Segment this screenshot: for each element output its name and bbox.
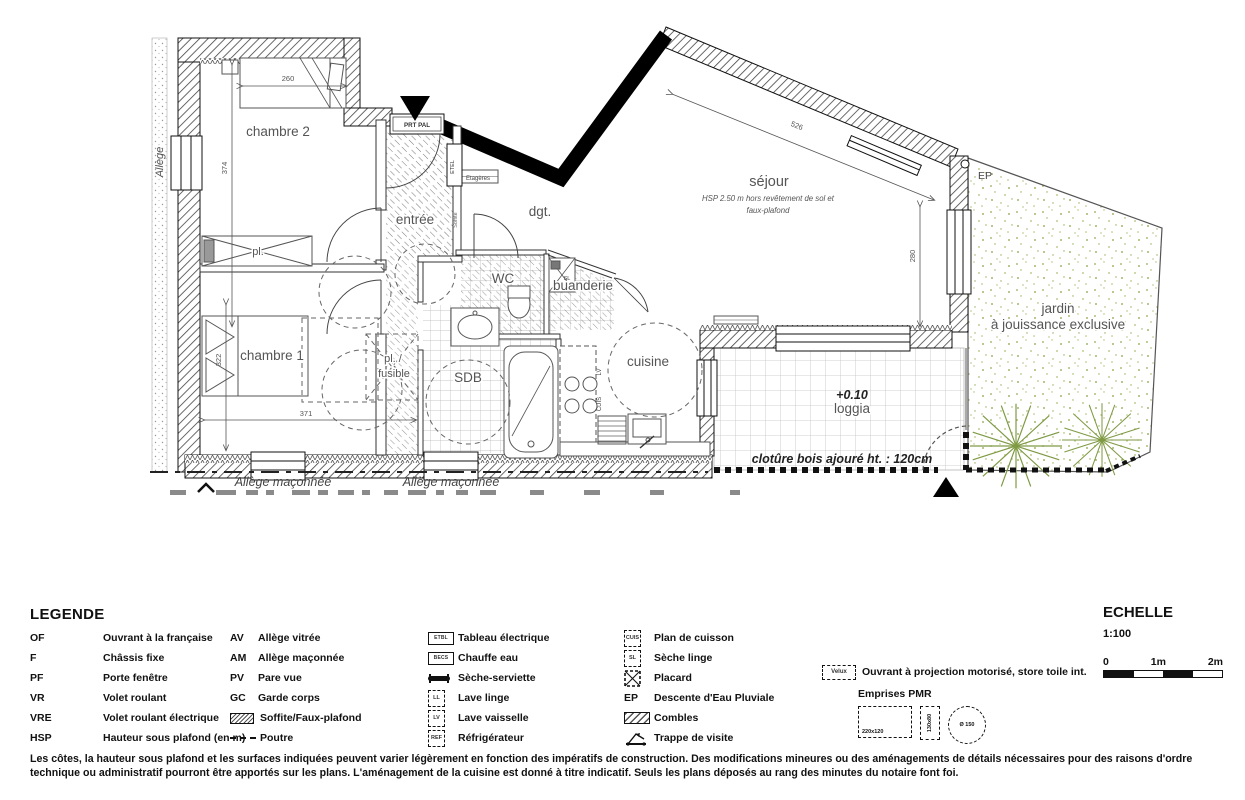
poutre-dash-icon bbox=[230, 737, 256, 739]
lave-vaisselle-icon: LV bbox=[428, 710, 445, 727]
svg-text:280: 280 bbox=[908, 250, 917, 263]
svg-text:371: 371 bbox=[300, 409, 313, 418]
soffite-pattern-icon bbox=[230, 713, 254, 724]
room-label-sdb: SDB bbox=[454, 370, 482, 385]
pmr-circle-150: Ø 150 bbox=[948, 706, 986, 744]
legend-label: Châssis fixe bbox=[103, 652, 164, 664]
room-label-chambre1: chambre 1 bbox=[240, 348, 304, 363]
room-label-entree: entrée bbox=[396, 212, 434, 227]
room-label-sejour: séjour bbox=[749, 174, 789, 190]
legend-label: Allège vitrée bbox=[258, 632, 320, 644]
scale-bar-segments bbox=[1103, 670, 1223, 678]
room-label-wc: WC bbox=[492, 271, 515, 286]
legend-label: Lave linge bbox=[458, 692, 509, 704]
pmr-title: Emprises PMR bbox=[858, 688, 986, 700]
legend-label: Placard bbox=[654, 672, 692, 684]
svg-text:260: 260 bbox=[282, 74, 295, 83]
room-label-loggia: loggia bbox=[834, 401, 871, 416]
legend-label: Ouvrant à la française bbox=[103, 632, 213, 644]
cloture-note: clotûre bois ajouré ht. : 120cm bbox=[752, 452, 933, 466]
legend-item: VeluxOuvrant à projection motorisé, stor… bbox=[822, 662, 1087, 682]
legend-abbr: VR bbox=[30, 692, 103, 704]
etel-label: ETEL bbox=[450, 160, 456, 174]
velux-icon: Velux bbox=[822, 665, 856, 680]
scale-tick-0: 0 bbox=[1103, 656, 1109, 668]
legend-abbr: OF bbox=[30, 632, 103, 644]
closet-label: pl. bbox=[252, 246, 264, 258]
legend-label: Réfrigérateur bbox=[458, 732, 524, 744]
svg-text:322: 322 bbox=[214, 354, 223, 367]
placard-icon bbox=[624, 670, 641, 687]
pmr-rect1-label: 220x120 bbox=[862, 729, 883, 735]
legend-item: PFPorte fenêtre bbox=[30, 668, 245, 688]
chauffe-eau-icon: BECS bbox=[428, 652, 454, 665]
disclaimer-line-2: technique ou administratif pourront être… bbox=[30, 767, 1230, 781]
legend-item: VREVolet roulant électrique bbox=[30, 708, 245, 728]
legend-label: Sèche-serviette bbox=[458, 672, 536, 684]
legend-column-1: OFOuvrant à la française FChâssis fixe P… bbox=[30, 628, 245, 748]
fusible-label-2: fusible bbox=[378, 368, 410, 380]
legend-title: LEGENDE bbox=[30, 606, 105, 623]
ep-label: EP bbox=[978, 170, 992, 182]
jardin-label-2: à jouissance exclusive bbox=[991, 317, 1125, 332]
legend-item: BECSChauffe eau bbox=[428, 648, 549, 668]
legend-label: Garde corps bbox=[258, 692, 320, 704]
legend-item: VRVolet roulant bbox=[30, 688, 245, 708]
room-label-buanderie: buanderie bbox=[553, 278, 613, 293]
disclaimer-line-1: Les côtes, la hauteur sous plafond et le… bbox=[30, 753, 1230, 767]
legend-item: Placard bbox=[624, 668, 774, 688]
hsp-note-2: faux-plafond bbox=[747, 206, 791, 215]
party-wall-black bbox=[440, 35, 666, 178]
legend-abbr: PF bbox=[30, 672, 103, 684]
plan-cuisson-icon: CUIS bbox=[624, 630, 641, 647]
legend-item: LLLave linge bbox=[428, 688, 549, 708]
legend-item: ETBLTableau électrique bbox=[428, 628, 549, 648]
legend-label: Tableau électrique bbox=[458, 632, 549, 644]
legend-label: Hauteur sous plafond (en m) bbox=[103, 732, 245, 744]
legend-label: Chauffe eau bbox=[458, 652, 518, 664]
legend-abbr: GC bbox=[230, 692, 258, 704]
ep-downpipe bbox=[961, 160, 969, 168]
tableau-electrique-icon: ETBL bbox=[428, 632, 454, 645]
seche-linge-icon: SL bbox=[624, 650, 641, 667]
legend-column-2: AVAllège vitrée AMAllège maçonnée PVPare… bbox=[230, 628, 362, 748]
legend-item: SLSèche linge bbox=[624, 648, 774, 668]
lave-linge-icon: LL bbox=[428, 690, 445, 707]
legend-item: AMAllège maçonnée bbox=[230, 648, 362, 668]
refrigerateur-icon: REF bbox=[428, 730, 445, 747]
legend-column-3: ETBLTableau électrique BECSChauffe eau S… bbox=[428, 628, 549, 748]
seche-serviette-icon bbox=[428, 676, 450, 681]
legend-item: Poutre bbox=[230, 728, 362, 748]
etageres-label: Etagères bbox=[466, 176, 490, 182]
ep-abbr: EP bbox=[624, 692, 638, 704]
legend-item: PVPare vue bbox=[230, 668, 362, 688]
combles-pattern-icon bbox=[624, 712, 650, 724]
disclaimer-text: Les côtes, la hauteur sous plafond et le… bbox=[30, 753, 1230, 780]
soffite-label: Soffite bbox=[453, 212, 459, 228]
legend-label: Sèche linge bbox=[654, 652, 712, 664]
legend-label: Combles bbox=[654, 712, 698, 724]
pmr-rect2-label: 130x80 bbox=[927, 714, 933, 732]
legend-abbr: HSP bbox=[30, 732, 103, 744]
legend-label: Poutre bbox=[260, 732, 293, 744]
legend-item: OFOuvrant à la française bbox=[30, 628, 245, 648]
legend-item: FChâssis fixe bbox=[30, 648, 245, 668]
legend-item: LVLave vaisselle bbox=[428, 708, 549, 728]
legend-column-4: CUISPlan de cuisson SLSèche linge Placar… bbox=[624, 628, 774, 748]
floorplan-page: PRT PAL bbox=[0, 0, 1245, 800]
scale-bar: 0 1m 2m bbox=[1103, 656, 1223, 678]
legend-label: Volet roulant électrique bbox=[103, 712, 219, 724]
scale-block: ECHELLE 1:100 0 1m 2m bbox=[1103, 604, 1227, 678]
pmr-rect-130x80: 130x80 bbox=[920, 706, 940, 740]
legend-label: Allège maçonnée bbox=[258, 652, 344, 664]
legend-abbr: AM bbox=[230, 652, 258, 664]
legend-column-5: VeluxOuvrant à projection motorisé, stor… bbox=[822, 662, 1087, 682]
floorplan-drawing: PRT PAL bbox=[0, 0, 1245, 560]
loggia-level: +0.10 bbox=[836, 388, 868, 402]
legend-label: Volet roulant bbox=[103, 692, 166, 704]
legend-abbr: PV bbox=[230, 672, 258, 684]
cuis-label: CUIS bbox=[597, 397, 603, 411]
legend-item: REFRéfrigérateur bbox=[428, 728, 549, 748]
lv-label: LV bbox=[597, 369, 603, 376]
entry-arrow-bottom bbox=[933, 477, 959, 497]
scale-title: ECHELLE bbox=[1103, 604, 1227, 621]
legend-item: GCGarde corps bbox=[230, 688, 362, 708]
fusible-label-1: pl. / bbox=[384, 353, 403, 365]
legend-item: Sèche-serviette bbox=[428, 668, 549, 688]
pmr-rect-220x120: 220x120 bbox=[858, 706, 912, 738]
legend-label: Pare vue bbox=[258, 672, 302, 684]
legend-label: Descente d'Eau Pluviale bbox=[654, 692, 774, 704]
prt-pal-label: PRT PAL bbox=[404, 122, 430, 129]
pmr-circle-label: Ø 150 bbox=[960, 722, 975, 728]
legend-label: Porte fenêtre bbox=[103, 672, 168, 684]
allege-maconnee-2: Allège maçonnée bbox=[402, 475, 500, 489]
legend-abbr: VRE bbox=[30, 712, 103, 724]
legend-item: HSPHauteur sous plafond (en m) bbox=[30, 728, 245, 748]
svg-text:374: 374 bbox=[220, 162, 229, 175]
svg-text:526: 526 bbox=[789, 119, 804, 132]
hsp-note-1: HSP 2.50 m hors revêtement de sol et bbox=[702, 194, 835, 203]
scale-ratio: 1:100 bbox=[1103, 628, 1227, 640]
trappe-de-visite-icon bbox=[624, 730, 648, 746]
legend-label: Lave vaisselle bbox=[458, 712, 529, 724]
legend-label: Soffite/Faux-plafond bbox=[260, 712, 362, 724]
pmr-block: Emprises PMR 220x120 130x80 Ø 150 bbox=[858, 688, 986, 744]
legend-item: Trappe de visite bbox=[624, 728, 774, 748]
legend-label: Plan de cuisson bbox=[654, 632, 734, 644]
legend-item: Combles bbox=[624, 708, 774, 728]
legend-label: Ouvrant à projection motorisé, store toi… bbox=[862, 666, 1087, 678]
room-label-cuisine: cuisine bbox=[627, 354, 669, 369]
legend-label: Trappe de visite bbox=[654, 732, 733, 744]
legend-abbr: AV bbox=[230, 632, 258, 644]
scale-tick-2m: 2m bbox=[1208, 656, 1223, 668]
legend-item: Soffite/Faux-plafond bbox=[230, 708, 362, 728]
room-label-dgt: dgt. bbox=[529, 204, 552, 219]
allege-maconnee-1: Allège maçonnée bbox=[234, 475, 332, 489]
allege-vertical: Allège bbox=[154, 147, 166, 179]
legend-item: EPDescente d'Eau Pluviale bbox=[624, 688, 774, 708]
legend-item: CUISPlan de cuisson bbox=[624, 628, 774, 648]
scale-tick-1m: 1m bbox=[1151, 656, 1166, 668]
room-label-chambre2: chambre 2 bbox=[246, 124, 310, 139]
legend-item: AVAllège vitrée bbox=[230, 628, 362, 648]
legend-abbr: F bbox=[30, 652, 103, 664]
sl-label: SL bbox=[564, 276, 571, 282]
jardin-label-1: jardin bbox=[1040, 301, 1074, 316]
